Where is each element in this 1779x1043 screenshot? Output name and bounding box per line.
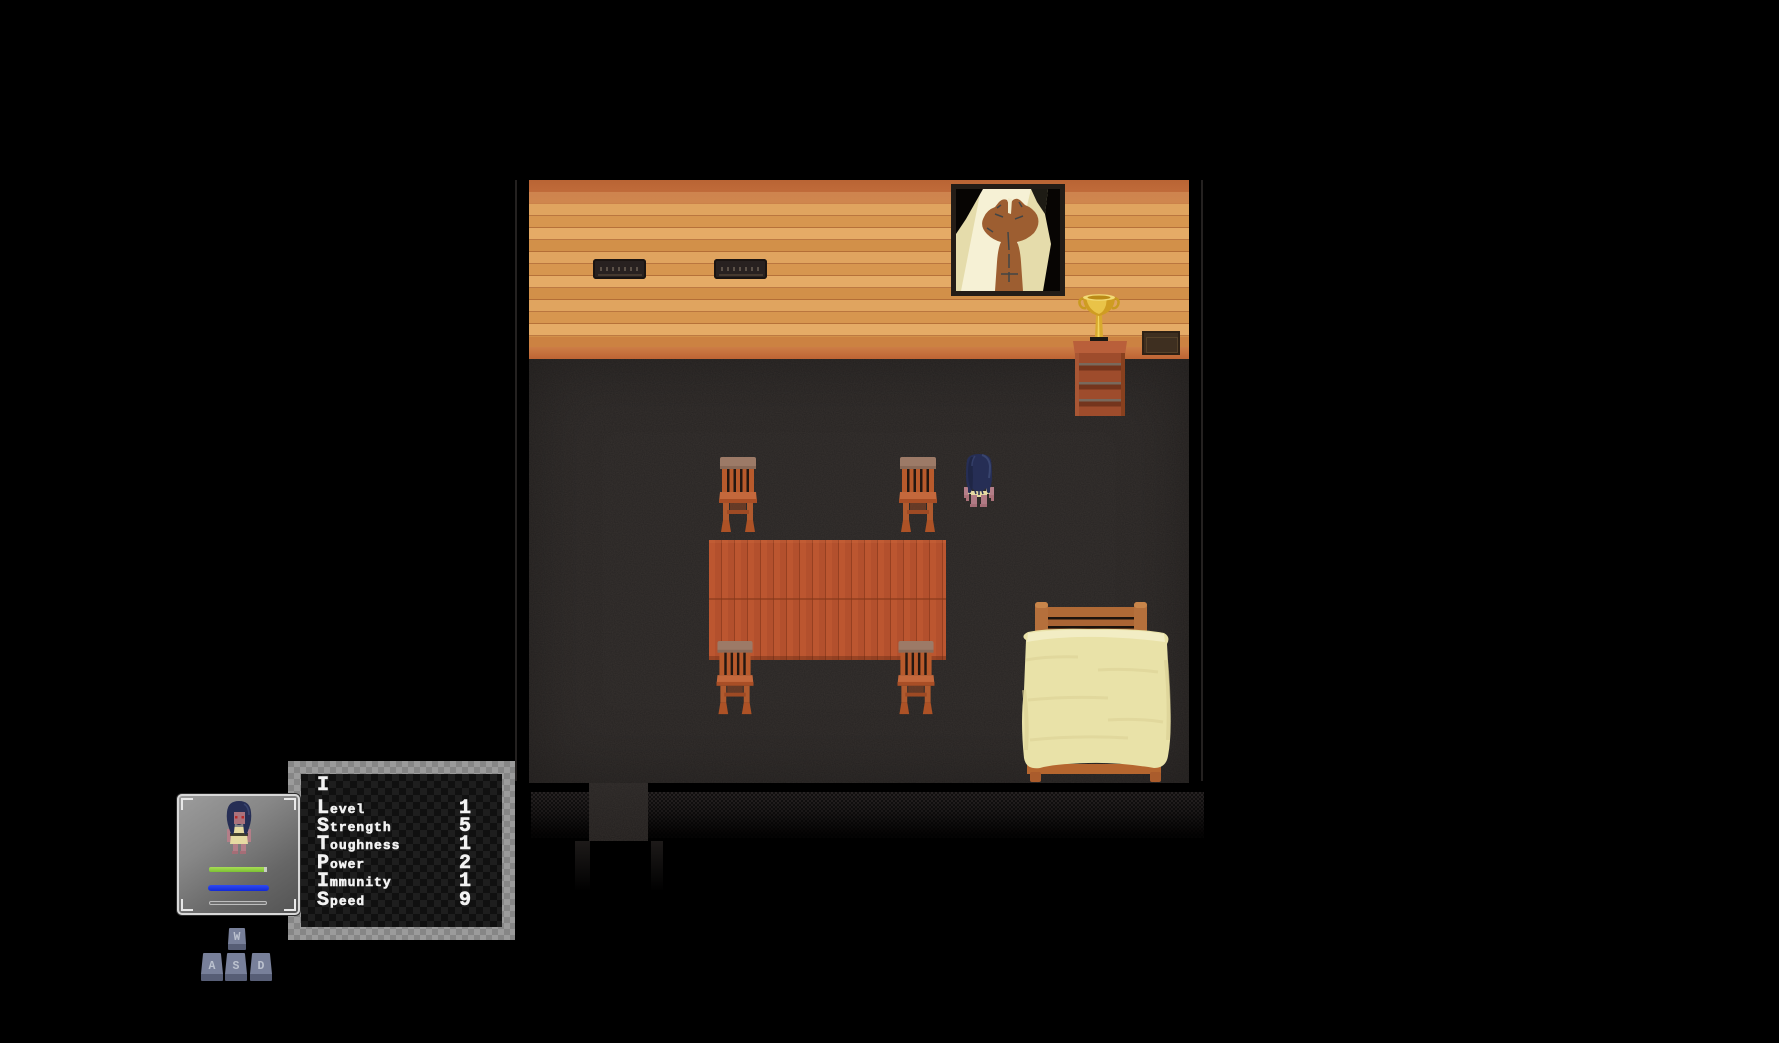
svg-text:A: A (209, 960, 216, 973)
svg-text:S: S (233, 960, 240, 973)
svg-text:D: D (258, 960, 265, 973)
svg-text:W: W (234, 931, 241, 944)
